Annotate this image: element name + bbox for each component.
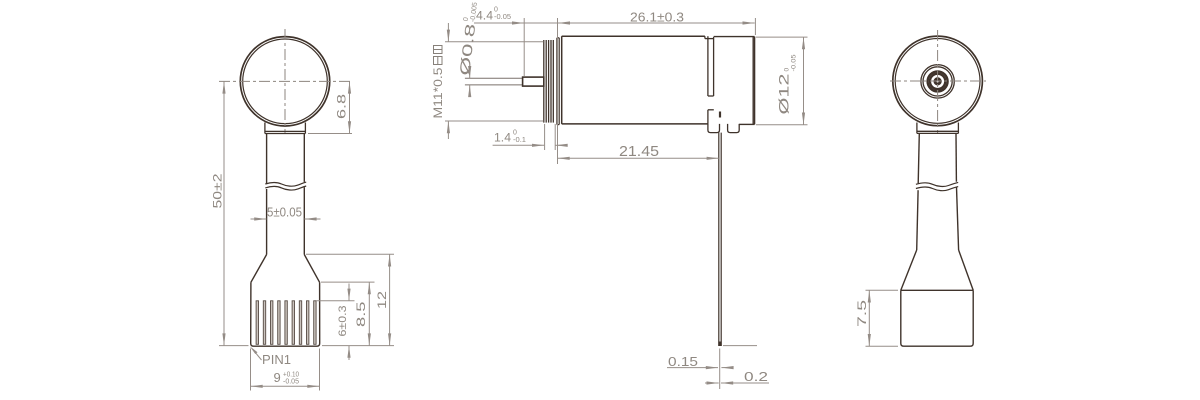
- svg-text:4.4: 4.4: [476, 10, 494, 22]
- svg-text:12: 12: [375, 291, 389, 309]
- svg-text:6±0.3: 6±0.3: [337, 306, 349, 337]
- svg-text:26.1±0.3: 26.1±0.3: [630, 9, 684, 24]
- svg-text:0.2: 0.2: [744, 370, 768, 384]
- svg-text:21.45: 21.45: [619, 144, 659, 160]
- svg-text:1.4: 1.4: [494, 133, 512, 145]
- svg-text:PIN1: PIN1: [262, 352, 291, 367]
- svg-text:-0.1: -0.1: [513, 137, 526, 144]
- svg-text:0: 0: [784, 68, 791, 72]
- svg-text:5±0.05: 5±0.05: [267, 206, 302, 220]
- svg-text:+0.10: +0.10: [283, 372, 299, 379]
- svg-text:9: 9: [274, 370, 281, 385]
- svg-text:-0.05: -0.05: [494, 14, 511, 21]
- svg-text:0: 0: [513, 130, 517, 137]
- svg-text:Ø12: Ø12: [776, 73, 792, 114]
- svg-text:6.8: 6.8: [335, 94, 349, 119]
- svg-text:M11*0.5: M11*0.5: [433, 68, 445, 119]
- svg-text:0: 0: [494, 7, 498, 14]
- svg-text:-0.05: -0.05: [791, 54, 798, 71]
- svg-text:7.5: 7.5: [855, 299, 869, 327]
- svg-text:-0.05: -0.05: [283, 379, 299, 386]
- svg-text:0.15: 0.15: [668, 355, 698, 369]
- svg-text:50±2: 50±2: [211, 173, 225, 208]
- svg-text:8.5: 8.5: [354, 301, 368, 327]
